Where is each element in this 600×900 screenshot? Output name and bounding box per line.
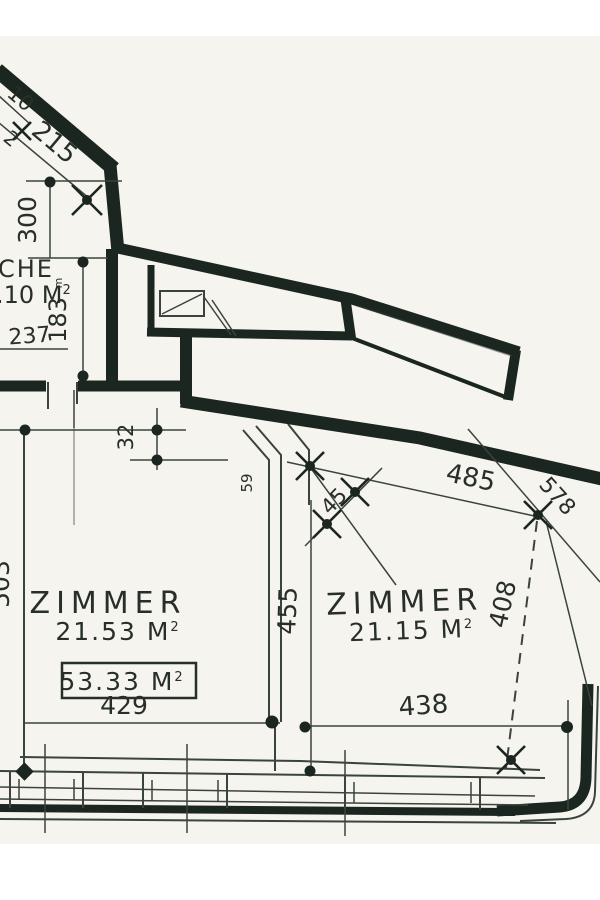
- room-left-area-sup: 2: [170, 620, 180, 635]
- kitchen-name-label: CHE: [0, 255, 54, 283]
- floor-plan-scan: 215 10 2 300 237 183 m 32 503 59 455 485…: [0, 0, 600, 900]
- dim-438-label: 438: [398, 689, 450, 722]
- dim-503-label: 503: [0, 560, 15, 608]
- dim-32-label: 32: [114, 424, 138, 451]
- room-left-name-label: ZIMMER: [30, 586, 187, 621]
- room-right-area-label: 21.15 M2: [349, 614, 475, 647]
- total-area-value: 53.33 M: [59, 667, 174, 696]
- dim-455-label: 455: [272, 586, 303, 635]
- total-area-label: 53.33 M2: [59, 667, 184, 696]
- room-right-area-sup: 2: [464, 617, 475, 632]
- dim-300-label: 300: [13, 196, 42, 244]
- floor-plan-drawing: 215 10 2 300 237 183 m 32 503 59 455 485…: [0, 0, 600, 900]
- kitchen-area-sup: 2: [63, 283, 71, 298]
- total-area-sup: 2: [174, 670, 184, 685]
- kitchen-area-value: .10 M: [0, 281, 63, 309]
- room-left-area-label: 21.53 M2: [55, 617, 180, 646]
- kitchen-area-label: .10 M2: [0, 281, 71, 309]
- room-left-area-value: 21.53 M: [55, 617, 170, 646]
- room-right-area-value: 21.15 M: [349, 614, 465, 647]
- dim-59-label: 59: [238, 473, 256, 492]
